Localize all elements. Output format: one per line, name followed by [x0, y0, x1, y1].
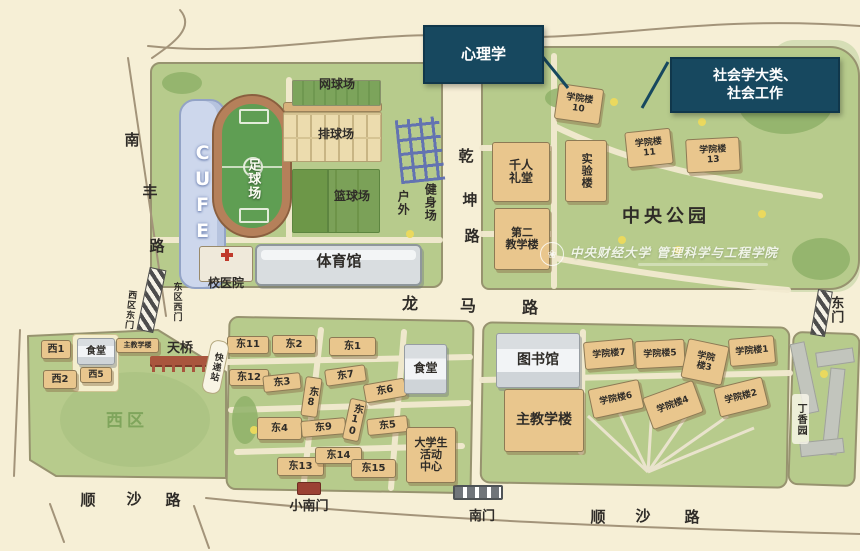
callout-sociology: 社会学大类、 社会工作 — [670, 57, 840, 113]
campus-map: CUFE足球场网球场排球场篮球场户外健身场体育馆校医院南丰路乾坤路龙马路顺沙路顺… — [0, 0, 860, 551]
callout-sociology-text: 社会学大类、 社会工作 — [713, 67, 797, 103]
callout-psychology: 心理学 — [423, 25, 544, 84]
callout-psychology-text: 心理学 — [461, 45, 506, 65]
